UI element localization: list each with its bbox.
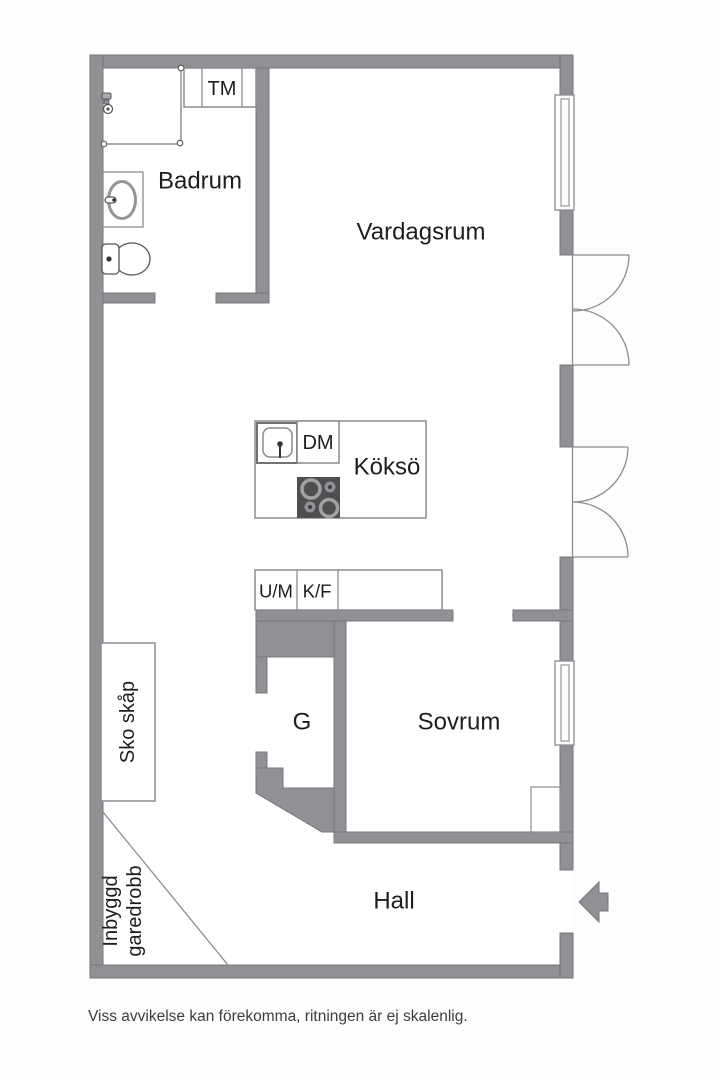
wall-segment <box>560 208 573 255</box>
washbasin-icon <box>103 172 143 227</box>
label-vardagsrum: Vardagsrum <box>357 219 486 246</box>
label-sko-skap: Sko skåp <box>117 681 139 763</box>
wall-segment <box>90 55 573 68</box>
wall-segment <box>560 743 573 870</box>
label-inbyggd-line2: garedrobb <box>124 865 146 956</box>
label-kf: K/F <box>303 581 332 602</box>
label-g: G <box>293 709 312 736</box>
floorplan-drawing: Badrum TM Vardagsrum DM Köksö U/M K/F Sk… <box>0 0 720 1080</box>
wall-segment <box>513 610 573 621</box>
wall-segment <box>216 293 269 303</box>
stove-icon <box>297 477 340 518</box>
wall-segment <box>334 832 573 843</box>
bedroom-window <box>555 661 574 745</box>
wall-segment <box>256 621 334 657</box>
label-badrum: Badrum <box>158 168 242 195</box>
wall-segment <box>256 610 453 621</box>
footer-disclaimer: Viss avvikelse kan förekomma, ritningen … <box>88 1008 468 1025</box>
balcony-door-upper <box>573 255 630 365</box>
entrance-arrow-left-icon <box>579 882 608 922</box>
wall-segment <box>256 657 267 693</box>
wall-segment <box>560 55 573 97</box>
label-dm: DM <box>302 432 333 454</box>
label-sovrum: Sovrum <box>418 709 501 736</box>
label-kokso: Köksö <box>354 454 421 481</box>
wall-segment <box>334 621 346 843</box>
wall-segment <box>560 933 573 978</box>
balcony-door-lower <box>573 447 629 557</box>
sink-icon <box>257 423 297 463</box>
wall-segment <box>103 293 155 303</box>
toilet-icon <box>102 243 150 275</box>
wall-segment <box>256 752 267 768</box>
living-room-window <box>555 95 574 210</box>
label-tm: TM <box>208 78 237 100</box>
bedroom-corner-box <box>531 787 560 832</box>
label-inbyggd-line1: Inbyggd <box>100 875 122 946</box>
floorplan-page: Badrum TM Vardagsrum DM Köksö U/M K/F Sk… <box>0 0 720 1080</box>
wall-segment <box>90 965 573 978</box>
wall-segment <box>560 365 573 447</box>
label-hall: Hall <box>373 888 414 915</box>
wall-segment <box>256 68 269 303</box>
label-um: U/M <box>259 581 293 602</box>
wall-segment <box>90 55 103 978</box>
